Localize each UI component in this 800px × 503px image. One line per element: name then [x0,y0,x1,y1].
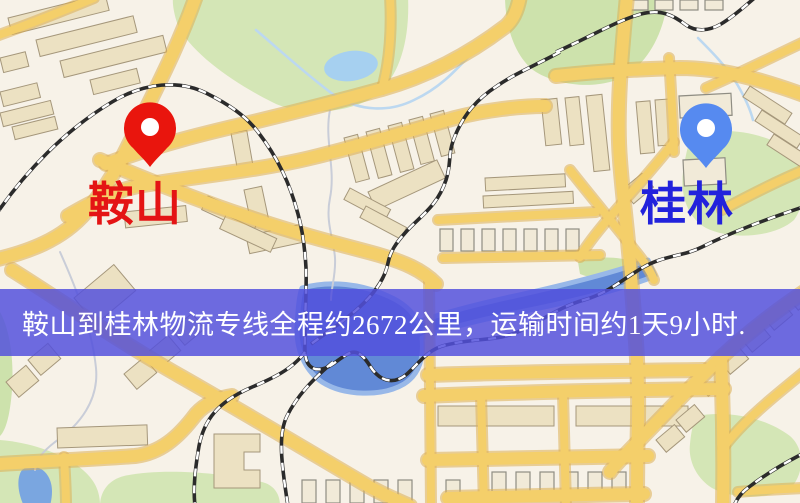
route-info-text: 鞍山到桂林物流专线全程约2672公里，运输时间约1天9小时. [22,303,746,342]
route-info-banner: 鞍山到桂林物流专线全程约2672公里，运输时间约1天9小时. [0,289,800,356]
origin-pin-icon [121,102,179,169]
destination-pin-icon [677,103,735,170]
map-container: 鞍山 桂林 鞍山到桂林物流专线全程约2672公里，运输时间约1天9小时. [0,0,800,503]
destination-city-label: 桂林 [640,182,734,228]
map-background [0,0,800,503]
origin-city-label: 鞍山 [88,182,182,228]
